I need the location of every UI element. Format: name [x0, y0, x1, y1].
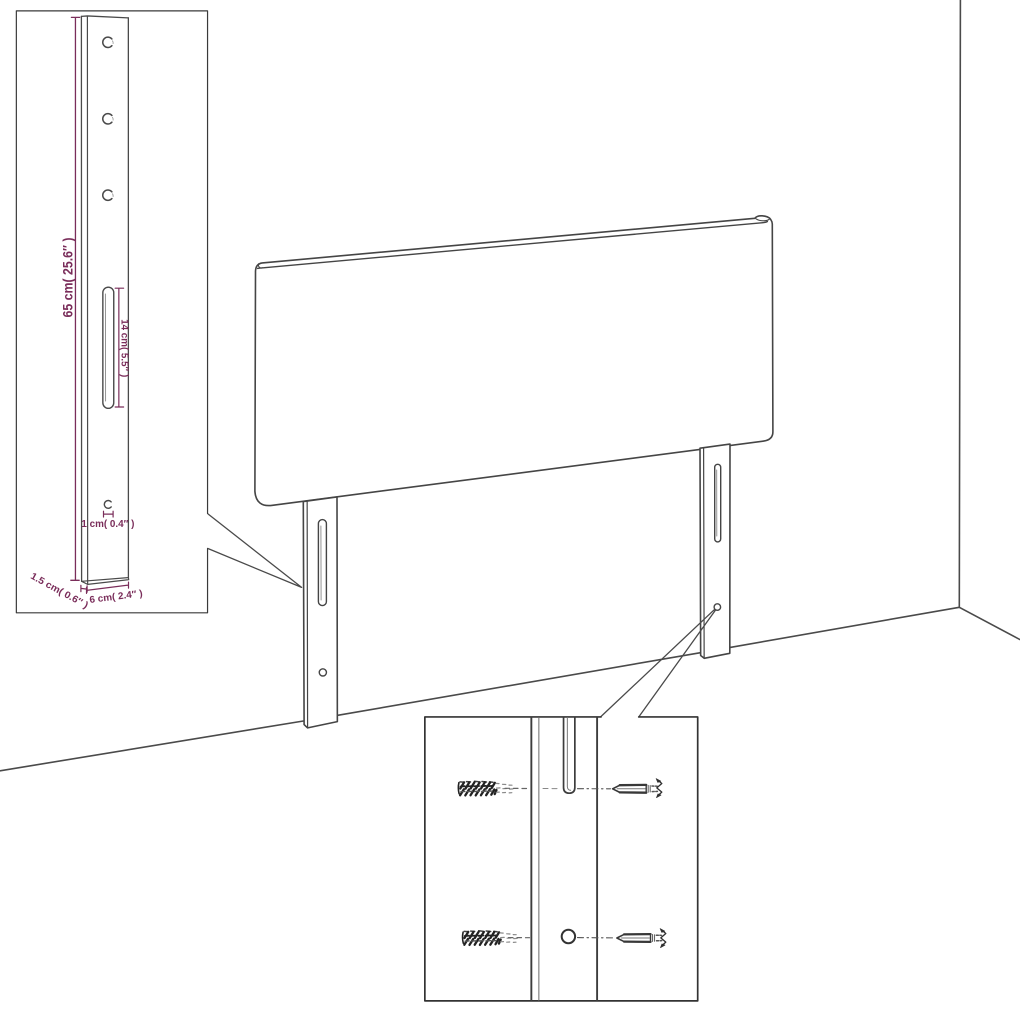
svg-text:14 cm( 5.5″ ): 14 cm( 5.5″ )	[119, 319, 130, 377]
svg-text:65 cm( 25.6″ ): 65 cm( 25.6″ )	[61, 238, 76, 318]
svg-text:1 cm( 0.4″ ): 1 cm( 0.4″ )	[81, 519, 134, 530]
